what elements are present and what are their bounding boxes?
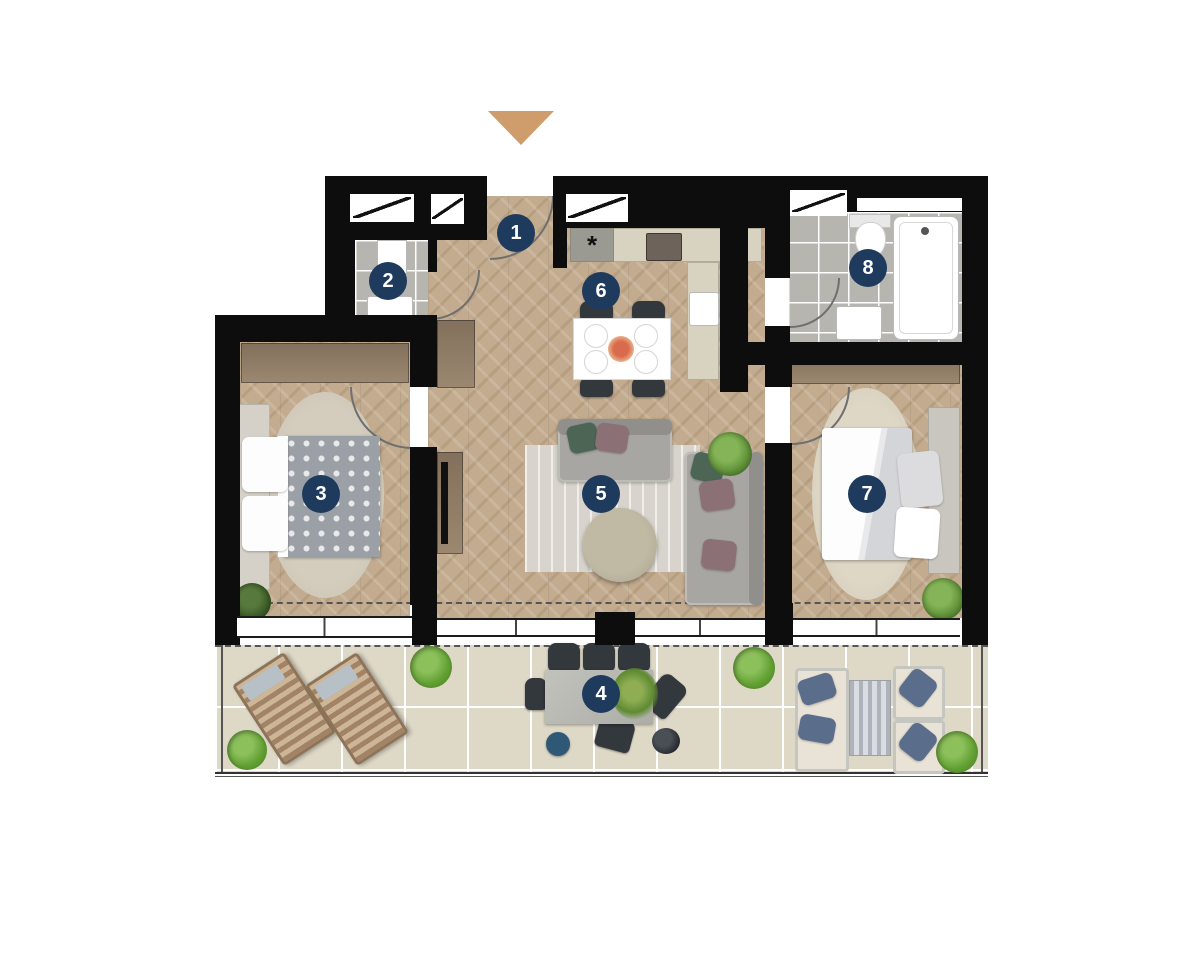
bush xyxy=(410,646,452,688)
window xyxy=(431,194,464,224)
room-badge-1: 1 xyxy=(497,214,535,252)
pillow xyxy=(242,437,288,492)
coffee-table-round xyxy=(583,508,657,582)
bush xyxy=(227,730,267,770)
wall xyxy=(765,212,790,278)
wall-pier xyxy=(765,603,793,645)
kitchen-marker: * xyxy=(570,228,614,262)
bathtub-inner xyxy=(899,222,953,334)
plant xyxy=(708,432,752,476)
wall xyxy=(720,212,748,392)
window xyxy=(790,190,847,216)
wall xyxy=(410,342,437,387)
sliding-glass-door xyxy=(437,618,595,637)
roof-overhang-dash-interior xyxy=(237,602,960,604)
room-badge-4: 4 xyxy=(582,675,620,713)
wall xyxy=(765,365,792,387)
outdoor-coffee-table xyxy=(849,680,891,756)
bush xyxy=(936,731,978,773)
wall-pier xyxy=(595,612,635,645)
room-badge-5: 5 xyxy=(582,475,620,513)
plate xyxy=(634,324,658,348)
window xyxy=(350,194,414,222)
wall xyxy=(748,342,988,365)
wall xyxy=(765,443,792,605)
sink xyxy=(836,306,882,340)
dining-chair xyxy=(632,377,665,397)
wall xyxy=(463,176,487,240)
tv xyxy=(441,462,448,544)
room-badge-8: 8 xyxy=(849,249,887,287)
room-badge-7: 7 xyxy=(848,475,886,513)
outdoor-chair xyxy=(525,678,547,710)
wall xyxy=(553,176,567,268)
outdoor-chair xyxy=(548,643,580,671)
window xyxy=(566,194,628,222)
plate xyxy=(584,350,608,374)
pillow xyxy=(896,450,944,509)
wardrobe xyxy=(241,343,409,383)
wall xyxy=(410,447,437,605)
wall-pier xyxy=(962,603,988,645)
pillow-mauve xyxy=(594,422,630,454)
terrace-rail-bottom xyxy=(215,776,988,777)
window-band xyxy=(857,198,962,211)
wall-pier xyxy=(215,603,237,645)
food-dish xyxy=(608,336,634,362)
sliding-glass-door xyxy=(635,618,765,637)
sliding-glass-door xyxy=(237,616,412,638)
dining-chair xyxy=(580,377,613,397)
entrance-arrow-icon xyxy=(488,111,554,145)
kitchen-sink xyxy=(646,233,682,261)
plant xyxy=(922,578,964,620)
terrace-rail-left xyxy=(221,643,223,772)
outdoor-chair xyxy=(583,643,615,671)
room-badge-6: 6 xyxy=(582,272,620,310)
outdoor-chair xyxy=(618,643,650,671)
sideboard xyxy=(437,320,475,388)
bush xyxy=(733,647,775,689)
fridge xyxy=(689,292,719,326)
room-badge-2: 2 xyxy=(369,262,407,300)
plate xyxy=(634,350,658,374)
wall-pier xyxy=(412,603,437,645)
pillow xyxy=(242,496,288,551)
wall xyxy=(962,176,988,645)
side-stool xyxy=(546,732,570,756)
sofa-backrest xyxy=(749,452,763,605)
pillow-mauve xyxy=(701,538,738,571)
wall xyxy=(215,315,240,645)
entrance-door-recess xyxy=(487,176,553,196)
bathtub-faucet xyxy=(921,227,929,235)
pillow xyxy=(893,507,940,560)
terrace-rail-right xyxy=(981,643,983,772)
wall xyxy=(215,315,437,342)
floor-plan: * xyxy=(0,0,1177,962)
plate xyxy=(584,324,608,348)
room-badge-3: 3 xyxy=(302,475,340,513)
grill xyxy=(652,728,680,754)
wall xyxy=(428,238,437,272)
sliding-glass-door xyxy=(793,618,960,637)
pillow-mauve xyxy=(698,478,736,512)
